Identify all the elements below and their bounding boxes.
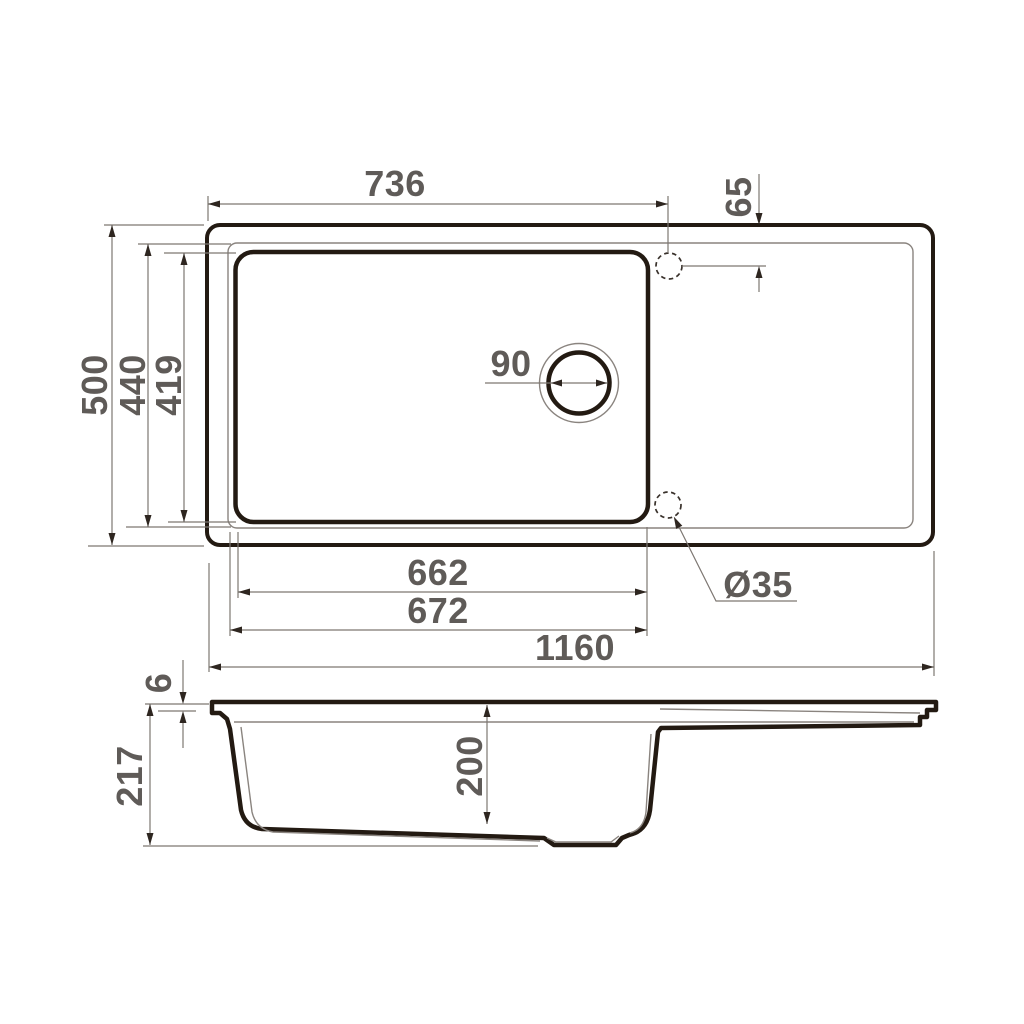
dim-label: 1160 <box>535 627 615 668</box>
arrowhead <box>922 664 934 671</box>
dim-label: 736 <box>364 163 426 204</box>
arrowhead <box>145 515 152 527</box>
dim-label: 65 <box>718 176 759 217</box>
dim-label: 200 <box>449 735 490 797</box>
arrowhead <box>180 692 187 704</box>
arrowhead <box>147 704 154 716</box>
arrowhead <box>147 833 154 845</box>
arrowhead <box>181 510 188 522</box>
arrowhead <box>208 201 220 208</box>
arrowhead <box>230 627 242 634</box>
side-view <box>212 702 936 845</box>
dim-label: 672 <box>407 590 469 631</box>
dim-1160: 1160 <box>209 551 934 676</box>
arrowhead <box>109 533 116 545</box>
arrowhead <box>180 711 187 723</box>
arrowhead <box>181 253 188 265</box>
sink-technical-drawing: 736 65 500 440 419 90 <box>0 0 1024 1024</box>
dim-label: 440 <box>112 354 153 416</box>
arrowhead <box>656 201 668 208</box>
dim-label: 500 <box>74 354 115 416</box>
dim-label: 662 <box>407 552 469 593</box>
arrowhead <box>145 244 152 256</box>
side-profile-outline <box>212 702 936 845</box>
dim-label: 90 <box>490 343 531 384</box>
arrowhead <box>109 225 116 237</box>
arrowhead <box>238 589 250 596</box>
arrowhead <box>209 664 221 671</box>
dim-label: 217 <box>109 745 150 807</box>
arrowhead <box>635 589 647 596</box>
dim-label: 6 <box>138 673 179 694</box>
arrowhead <box>635 627 647 634</box>
dim-label: 419 <box>148 354 189 416</box>
dim-6: 6 <box>138 660 209 748</box>
dim-label: Ø35 <box>723 564 793 605</box>
top-view <box>207 225 933 545</box>
